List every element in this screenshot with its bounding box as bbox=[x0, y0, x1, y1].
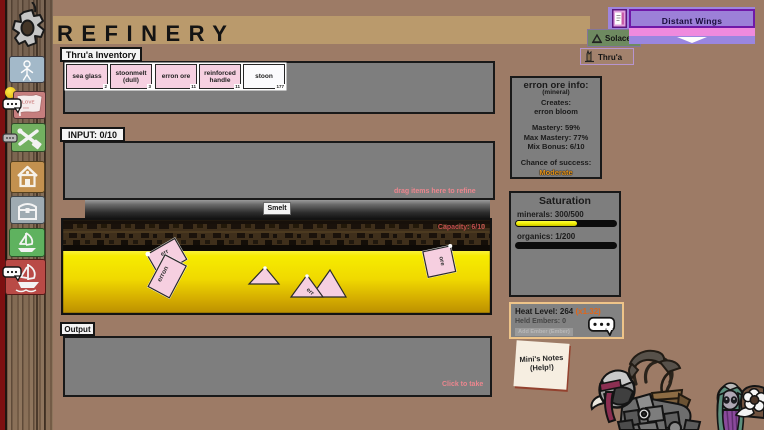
svg-text:vvv: vvv bbox=[23, 105, 29, 110]
svg-text:LOVE: LOVE bbox=[22, 100, 35, 105]
svg-text:Capacity: 6/10: Capacity: 6/10 bbox=[438, 224, 485, 231]
